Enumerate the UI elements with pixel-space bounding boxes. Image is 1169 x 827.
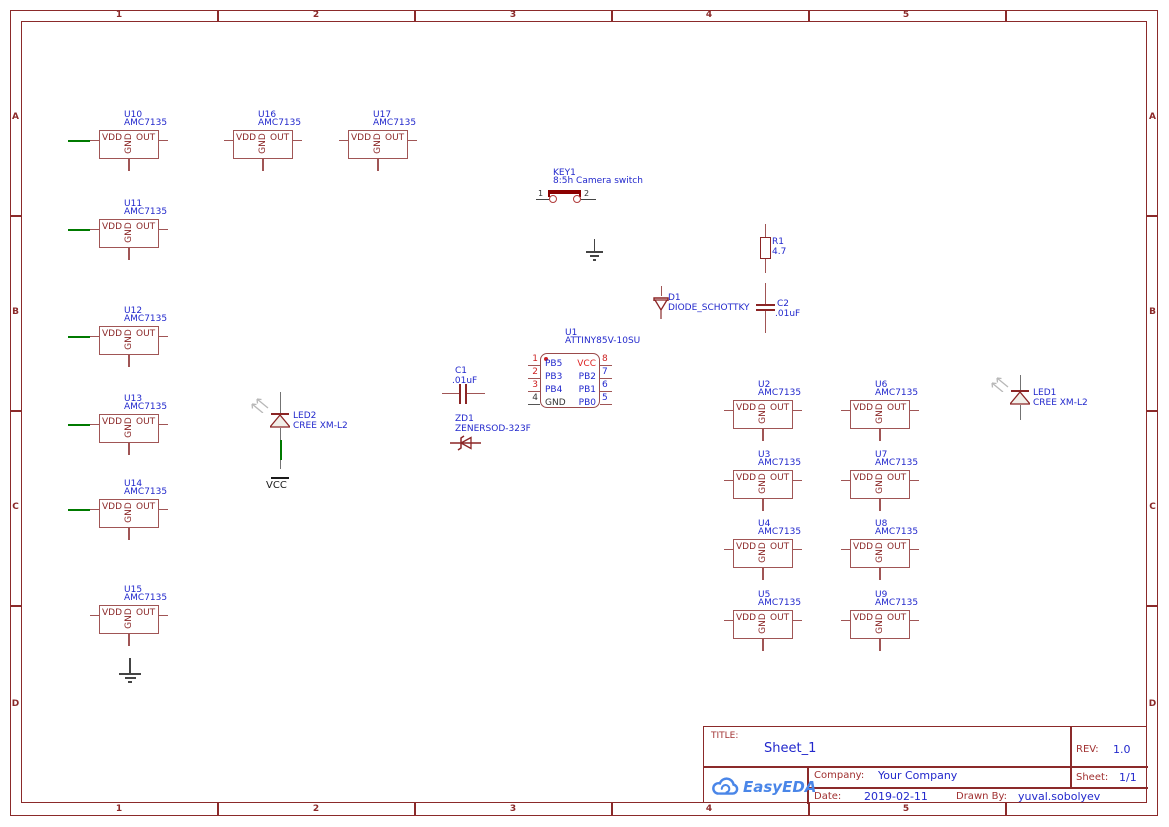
component-value[interactable]: ZENERSOD-323F bbox=[455, 425, 531, 434]
component-u3[interactable]: U3AMC7135VDDOUTGND bbox=[733, 470, 803, 515]
pin-wire[interactable] bbox=[765, 311, 767, 333]
mcu-pin[interactable] bbox=[600, 404, 612, 406]
wire-vdd[interactable] bbox=[68, 140, 90, 142]
mcu-pin-number: 2 bbox=[528, 368, 538, 377]
frame-row-letter: B bbox=[10, 306, 21, 318]
drawn-by-label: Drawn By: bbox=[956, 791, 1007, 802]
pin-name-out: OUT bbox=[270, 134, 289, 143]
rev-label: REV: bbox=[1076, 744, 1099, 755]
date-value[interactable]: 2019-02-11 bbox=[864, 790, 928, 803]
pin-name-out: OUT bbox=[136, 418, 155, 427]
pin-number: 2 bbox=[584, 190, 589, 198]
pin-out[interactable] bbox=[159, 615, 168, 617]
pin-name-vdd: VDD bbox=[853, 474, 873, 483]
pin-name-out: OUT bbox=[770, 474, 789, 483]
wire[interactable] bbox=[1020, 405, 1022, 420]
pin-vdd[interactable] bbox=[339, 140, 348, 142]
pin-out[interactable] bbox=[910, 549, 919, 551]
gnd-symbol[interactable] bbox=[119, 658, 143, 686]
pin-vdd[interactable] bbox=[90, 509, 99, 511]
pin-name-gnd: GND bbox=[876, 613, 885, 634]
component-labels[interactable]: U7AMC7135 bbox=[875, 451, 918, 467]
pin-name-gnd: GND bbox=[259, 133, 268, 154]
component-value[interactable]: 4.7 bbox=[772, 248, 786, 257]
pin-name-gnd: GND bbox=[759, 403, 768, 424]
pin-gnd[interactable] bbox=[762, 499, 764, 511]
pin-name-vdd: VDD bbox=[102, 223, 122, 232]
capacitor-plate bbox=[465, 384, 467, 404]
frame-row-letter: C bbox=[1147, 501, 1158, 513]
component-u17[interactable]: U17AMC7135VDDOUTGND bbox=[348, 130, 418, 175]
frame-column-number: 5 bbox=[896, 804, 916, 815]
component-value[interactable]: CREE XM-L2 bbox=[1033, 399, 1088, 408]
pin-name-vdd: VDD bbox=[102, 418, 122, 427]
mcu-pin[interactable] bbox=[528, 391, 540, 393]
component-labels[interactable]: U9AMC7135 bbox=[875, 591, 918, 607]
resistor-body[interactable] bbox=[760, 237, 771, 259]
component-value: AMC7135 bbox=[758, 528, 801, 536]
pin-name-gnd: GND bbox=[374, 133, 383, 154]
led-light-arrows-icon bbox=[988, 374, 1010, 392]
switch-contact bbox=[573, 195, 581, 203]
component-u13[interactable]: U13AMC7135VDDOUTGND bbox=[99, 414, 169, 459]
mcu-pin[interactable] bbox=[600, 365, 612, 367]
gnd-symbol[interactable] bbox=[586, 239, 606, 263]
date-label: Date: bbox=[814, 791, 841, 802]
component-led1[interactable]: LED1 CREE XM-L2 bbox=[988, 374, 1098, 434]
frame-tick bbox=[1147, 605, 1158, 607]
mcu-pin-name: PB1 bbox=[568, 386, 596, 395]
component-value: AMC7135 bbox=[875, 459, 918, 467]
pin-name-vdd: VDD bbox=[736, 614, 756, 623]
pin-out[interactable] bbox=[910, 410, 919, 412]
component-value[interactable]: CREE XM-L2 bbox=[293, 422, 348, 431]
frame-row-letter: B bbox=[1147, 306, 1158, 318]
pin-name-gnd: GND bbox=[125, 133, 134, 154]
pin-gnd[interactable] bbox=[377, 159, 379, 171]
pin-gnd[interactable] bbox=[762, 639, 764, 651]
pin-gnd[interactable] bbox=[128, 528, 130, 540]
pin-name-gnd: GND bbox=[125, 502, 134, 523]
pin-vdd[interactable] bbox=[841, 549, 850, 551]
mcu-pin-name: PB0 bbox=[568, 399, 596, 408]
rev-value[interactable]: 1.0 bbox=[1113, 743, 1131, 756]
pin-2-wire[interactable] bbox=[581, 199, 596, 201]
component-u5[interactable]: U5AMC7135VDDOUTGND bbox=[733, 610, 803, 655]
pin-vdd[interactable] bbox=[724, 620, 733, 622]
pin-vdd[interactable] bbox=[90, 140, 99, 142]
pin-vdd[interactable] bbox=[841, 480, 850, 482]
component-zd1[interactable]: ZD1 ZENERSOD-323F bbox=[450, 413, 540, 453]
pin-out[interactable] bbox=[408, 140, 417, 142]
pin-wire[interactable] bbox=[661, 286, 663, 296]
pin-name-out: OUT bbox=[136, 330, 155, 339]
mcu-pin-number: 1 bbox=[528, 355, 538, 364]
component-labels[interactable]: U15AMC7135 bbox=[124, 586, 167, 602]
led-triangle[interactable] bbox=[1010, 391, 1030, 405]
component-value: AMC7135 bbox=[124, 208, 167, 216]
frame-tick bbox=[1147, 410, 1158, 412]
mcu-pin[interactable] bbox=[600, 378, 612, 380]
component-value: AMC7135 bbox=[124, 403, 167, 411]
led-light-arrows-icon bbox=[248, 395, 270, 413]
component-labels[interactable]: U13AMC7135 bbox=[124, 395, 167, 411]
component-u4[interactable]: U4AMC7135VDDOUTGND bbox=[733, 539, 803, 584]
pin-name-out: OUT bbox=[136, 134, 155, 143]
company-value[interactable]: Your Company bbox=[878, 769, 957, 782]
mcu-pin-name: PB4 bbox=[545, 386, 562, 395]
pin-vdd[interactable] bbox=[841, 620, 850, 622]
pin-vdd[interactable] bbox=[724, 549, 733, 551]
title-label: TITLE: bbox=[711, 731, 738, 741]
pin-vdd[interactable] bbox=[90, 424, 99, 426]
vcc-net-flag[interactable] bbox=[271, 477, 289, 479]
pin-1-wire[interactable] bbox=[536, 199, 549, 201]
led-triangle[interactable] bbox=[270, 414, 290, 428]
component-u7[interactable]: U7AMC7135VDDOUTGND bbox=[850, 470, 920, 515]
pin-wire[interactable] bbox=[765, 259, 767, 273]
pin-out[interactable] bbox=[910, 480, 919, 482]
capacitor-plate bbox=[756, 304, 775, 306]
component-ref[interactable]: D1 bbox=[668, 294, 681, 303]
component-value: AMC7135 bbox=[373, 119, 416, 127]
pin-name-gnd: GND bbox=[759, 613, 768, 634]
pin-gnd[interactable] bbox=[128, 248, 130, 260]
pin-vdd[interactable] bbox=[841, 410, 850, 412]
pin-gnd[interactable] bbox=[879, 499, 881, 511]
pin-name-out: OUT bbox=[887, 543, 906, 552]
pin-wire[interactable] bbox=[765, 283, 767, 304]
frame-column-number: 1 bbox=[109, 804, 129, 815]
schottky-diode-symbol[interactable] bbox=[653, 296, 669, 320]
pin-name-out: OUT bbox=[887, 474, 906, 483]
component-u6[interactable]: U6AMC7135VDDOUTGND bbox=[850, 400, 920, 445]
component-value: AMC7135 bbox=[758, 389, 801, 397]
component-value: AMC7135 bbox=[124, 119, 167, 127]
pin-name-out: OUT bbox=[887, 614, 906, 623]
component-c1[interactable]: C1 .01uF bbox=[442, 366, 492, 406]
mcu-pin-name: PB5 bbox=[545, 360, 562, 369]
pin-out[interactable] bbox=[793, 549, 802, 551]
component-u15[interactable]: U15AMC7135VDDOUTGND bbox=[99, 605, 169, 650]
component-u8[interactable]: U8AMC7135VDDOUTGND bbox=[850, 539, 920, 584]
vcc-net-label[interactable]: VCC bbox=[266, 481, 287, 491]
pin-gnd[interactable] bbox=[879, 568, 881, 580]
component-value: AMC7135 bbox=[875, 528, 918, 536]
component-labels[interactable]: U11AMC7135 bbox=[124, 200, 167, 216]
switch-contact bbox=[549, 195, 557, 203]
pin-out[interactable] bbox=[910, 620, 919, 622]
frame-row-letter: A bbox=[10, 111, 21, 123]
pin-name-vdd: VDD bbox=[853, 614, 873, 623]
pin-name-out: OUT bbox=[770, 404, 789, 413]
component-labels[interactable]: U2AMC7135 bbox=[758, 381, 801, 397]
mcu-pin[interactable] bbox=[528, 404, 540, 406]
wire[interactable] bbox=[1020, 375, 1022, 390]
pin-gnd[interactable] bbox=[762, 568, 764, 580]
frame-row-letter: C bbox=[10, 501, 21, 513]
pin-gnd[interactable] bbox=[128, 634, 130, 646]
pin-name-gnd: GND bbox=[876, 473, 885, 494]
component-ref[interactable]: LED1 bbox=[1033, 389, 1056, 398]
component-led2[interactable]: VCC LED2 CREE XM-L2 bbox=[248, 392, 358, 497]
pin-out[interactable] bbox=[793, 410, 802, 412]
pin-name-gnd: GND bbox=[125, 222, 134, 243]
pin-name-gnd: GND bbox=[125, 417, 134, 438]
component-ref[interactable]: LED2 bbox=[293, 412, 316, 421]
mcu-pin-number: 6 bbox=[602, 381, 608, 390]
wire-vdd[interactable] bbox=[68, 509, 90, 511]
sheet-title[interactable]: Sheet_1 bbox=[764, 741, 816, 756]
component-ref[interactable]: C1 bbox=[455, 367, 467, 376]
component-value: AMC7135 bbox=[758, 459, 801, 467]
frame-tick bbox=[10, 605, 21, 607]
component-value: AMC7135 bbox=[875, 599, 918, 607]
pin-out[interactable] bbox=[159, 336, 168, 338]
component-labels[interactable]: U14AMC7135 bbox=[124, 480, 167, 496]
component-ref[interactable]: C2 bbox=[777, 300, 789, 309]
component-u14[interactable]: U14AMC7135VDDOUTGND bbox=[99, 499, 169, 544]
frame-tick bbox=[1005, 803, 1007, 815]
company-label: Company: bbox=[814, 770, 864, 781]
mcu-pin-name: PB3 bbox=[545, 373, 562, 382]
pin-gnd[interactable] bbox=[128, 443, 130, 455]
pin-name-gnd: GND bbox=[759, 473, 768, 494]
frame-column-number: 2 bbox=[306, 804, 326, 815]
frame-column-number: 2 bbox=[306, 10, 326, 21]
component-labels[interactable]: U16AMC7135 bbox=[258, 111, 301, 127]
pin-gnd[interactable] bbox=[762, 429, 764, 441]
pin-name-out: OUT bbox=[136, 503, 155, 512]
frame-tick bbox=[217, 803, 219, 815]
capacitor-plate bbox=[459, 384, 461, 404]
component-value[interactable]: DIODE_SCHOTTKY bbox=[668, 304, 750, 313]
pin-out[interactable] bbox=[793, 620, 802, 622]
easyeda-logo-text: EasyEDA bbox=[743, 778, 816, 796]
component-value: AMC7135 bbox=[124, 488, 167, 496]
easyeda-cloud-logo-icon bbox=[710, 774, 742, 799]
wire-vdd[interactable] bbox=[68, 336, 90, 338]
mcu-pin-number: 7 bbox=[602, 368, 608, 377]
pin-vdd[interactable] bbox=[724, 410, 733, 412]
frame-tick bbox=[10, 215, 21, 217]
component-c2[interactable]: C2 .01uF bbox=[752, 283, 807, 333]
frame-tick bbox=[414, 803, 416, 815]
wire[interactable] bbox=[280, 392, 282, 413]
switch-cap bbox=[548, 190, 581, 194]
frame-column-number: 4 bbox=[699, 804, 719, 815]
wire-vdd[interactable] bbox=[68, 424, 90, 426]
component-d1[interactable]: D1 DIODE_SCHOTTKY bbox=[653, 286, 753, 322]
frame-tick bbox=[10, 410, 21, 412]
pin-name-vdd: VDD bbox=[102, 503, 122, 512]
component-value: AMC7135 bbox=[124, 594, 167, 602]
frame-tick bbox=[1147, 215, 1158, 217]
component-labels[interactable]: U10AMC7135 bbox=[124, 111, 167, 127]
frame-row-letter: A bbox=[1147, 111, 1158, 123]
component-labels[interactable]: U5AMC7135 bbox=[758, 591, 801, 607]
pin-wire[interactable] bbox=[765, 224, 767, 237]
mcu-pin-name: PB2 bbox=[568, 373, 596, 382]
pin-vdd[interactable] bbox=[224, 140, 233, 142]
component-u2[interactable]: U2AMC7135VDDOUTGND bbox=[733, 400, 803, 445]
pin-name-out: OUT bbox=[770, 614, 789, 623]
mcu-pin-name: GND bbox=[545, 399, 566, 408]
component-u1[interactable]: U1 ATTINY85V-10SU PB51PB32PB43GND4VCC8PB… bbox=[528, 329, 628, 424]
pin-vdd[interactable] bbox=[90, 336, 99, 338]
pin-name-gnd: GND bbox=[125, 608, 134, 629]
wire-vdd[interactable] bbox=[68, 229, 90, 231]
component-r1[interactable]: R1 4.7 bbox=[758, 224, 798, 279]
wire[interactable] bbox=[280, 460, 282, 469]
pin-gnd[interactable] bbox=[128, 159, 130, 171]
component-value: AMC7135 bbox=[758, 599, 801, 607]
pin-number: 1 bbox=[538, 190, 543, 198]
component-value: AMC7135 bbox=[124, 315, 167, 323]
pin-name-vdd: VDD bbox=[736, 404, 756, 413]
pin-gnd[interactable] bbox=[879, 639, 881, 651]
mcu-pin[interactable] bbox=[528, 365, 540, 367]
pin-wire[interactable] bbox=[442, 393, 459, 395]
pin-name-gnd: GND bbox=[876, 403, 885, 424]
pin-out[interactable] bbox=[159, 509, 168, 511]
sheet-value[interactable]: 1/1 bbox=[1119, 771, 1137, 784]
frame-tick bbox=[808, 803, 810, 815]
component-labels[interactable]: U12AMC7135 bbox=[124, 307, 167, 323]
pin-vdd[interactable] bbox=[724, 480, 733, 482]
component-u16[interactable]: U16AMC7135VDDOUTGND bbox=[233, 130, 303, 175]
component-u11[interactable]: U11AMC7135VDDOUTGND bbox=[99, 219, 169, 264]
frame-tick bbox=[217, 10, 219, 21]
pin-gnd[interactable] bbox=[879, 429, 881, 441]
pin-out[interactable] bbox=[159, 140, 168, 142]
mcu-pin-number: 5 bbox=[602, 394, 608, 403]
mcu-pin-name: VCC bbox=[568, 360, 596, 369]
wire[interactable] bbox=[280, 428, 282, 440]
mcu-pin[interactable] bbox=[600, 391, 612, 393]
zener-diode-symbol[interactable] bbox=[450, 435, 482, 451]
component-u9[interactable]: U9AMC7135VDDOUTGND bbox=[850, 610, 920, 655]
pin-name-vdd: VDD bbox=[102, 609, 122, 618]
component-value: 8:5h Camera switch bbox=[553, 177, 643, 185]
frame-tick bbox=[808, 10, 810, 21]
component-u10[interactable]: U10AMC7135VDDOUTGND bbox=[99, 130, 169, 175]
component-value: AMC7135 bbox=[875, 389, 918, 397]
component-labels[interactable]: U4AMC7135 bbox=[758, 520, 801, 536]
pin-name-vdd: VDD bbox=[736, 474, 756, 483]
frame-row-letter: D bbox=[1147, 698, 1158, 710]
frame-tick bbox=[414, 10, 416, 21]
pin-out[interactable] bbox=[793, 480, 802, 482]
component-key1[interactable]: KEY1 8:5h Camera switch 1 2 bbox=[536, 168, 666, 208]
title-block: TITLE: Sheet_1 REV: 1.0 Company: Your Co… bbox=[703, 726, 1147, 803]
component-labels[interactable]: U17AMC7135 bbox=[373, 111, 416, 127]
pin-name-vdd: VDD bbox=[236, 134, 256, 143]
pin-name-out: OUT bbox=[136, 609, 155, 618]
mcu-pin[interactable] bbox=[528, 378, 540, 380]
component-labels[interactable]: KEY1 8:5h Camera switch bbox=[553, 169, 643, 185]
frame-column-number: 5 bbox=[896, 10, 916, 21]
pin-out[interactable] bbox=[293, 140, 302, 142]
pin-wire[interactable] bbox=[467, 393, 485, 395]
pin-vdd[interactable] bbox=[90, 615, 99, 617]
pin-name-vdd: VDD bbox=[102, 134, 122, 143]
frame-row-letter: D bbox=[10, 698, 21, 710]
pin-name-out: OUT bbox=[136, 223, 155, 232]
pin-name-out: OUT bbox=[770, 543, 789, 552]
component-ref[interactable]: R1 bbox=[772, 238, 784, 247]
frame-tick bbox=[1005, 10, 1007, 21]
frame-column-number: 1 bbox=[109, 10, 129, 21]
pin-name-gnd: GND bbox=[876, 542, 885, 563]
pin-name-vdd: VDD bbox=[351, 134, 371, 143]
pin-gnd[interactable] bbox=[262, 159, 264, 171]
component-value: ATTINY85V-10SU bbox=[565, 337, 640, 345]
component-labels[interactable]: U3AMC7135 bbox=[758, 451, 801, 467]
component-value[interactable]: .01uF bbox=[775, 310, 800, 319]
frame-column-number: 3 bbox=[503, 804, 523, 815]
frame-column-number: 3 bbox=[503, 10, 523, 21]
frame-column-number: 4 bbox=[699, 10, 719, 21]
pin-name-vdd: VDD bbox=[736, 543, 756, 552]
pin-name-out: OUT bbox=[385, 134, 404, 143]
pin-vdd[interactable] bbox=[90, 229, 99, 231]
drawn-by-value[interactable]: yuval.sobolyev bbox=[1018, 790, 1100, 803]
mcu-pin-number: 4 bbox=[528, 394, 538, 403]
wire-vcc[interactable] bbox=[280, 440, 282, 460]
pin-name-vdd: VDD bbox=[853, 404, 873, 413]
component-labels[interactable]: U8AMC7135 bbox=[875, 520, 918, 536]
pin-out[interactable] bbox=[159, 229, 168, 231]
frame-tick bbox=[611, 803, 613, 815]
frame-tick bbox=[611, 10, 613, 21]
mcu-pin-number: 3 bbox=[528, 381, 538, 390]
component-value: AMC7135 bbox=[258, 119, 301, 127]
component-u12[interactable]: U12AMC7135VDDOUTGND bbox=[99, 326, 169, 371]
component-labels[interactable]: U6AMC7135 bbox=[875, 381, 918, 397]
pin-name-gnd: GND bbox=[759, 542, 768, 563]
sheet-label: Sheet: bbox=[1076, 772, 1108, 783]
mcu-pin-number: 8 bbox=[602, 355, 608, 364]
pin-name-gnd: GND bbox=[125, 329, 134, 350]
pin-out[interactable] bbox=[159, 424, 168, 426]
pin-gnd[interactable] bbox=[128, 355, 130, 367]
pin-name-vdd: VDD bbox=[853, 543, 873, 552]
pin-name-out: OUT bbox=[887, 404, 906, 413]
component-labels[interactable]: U1 ATTINY85V-10SU bbox=[565, 329, 640, 345]
pin-name-vdd: VDD bbox=[102, 330, 122, 339]
component-ref[interactable]: ZD1 bbox=[455, 415, 474, 424]
schematic-sheet[interactable]: 1122334455AABBCCDD U10AMC7135VDDOUTGNDU1… bbox=[0, 0, 1169, 827]
